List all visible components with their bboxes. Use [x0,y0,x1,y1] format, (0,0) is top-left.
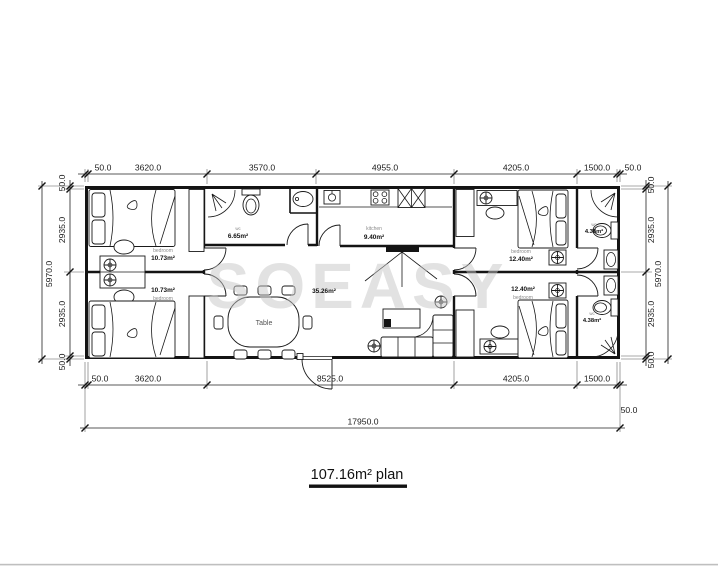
room-name: bedroom [153,248,173,254]
dim-top-50-right: 50.0 [625,163,642,173]
desk-top-right [477,191,517,220]
room-name: kitchen [366,226,382,232]
bed-top-left [89,190,175,247]
door-wc-bottom-right [577,275,598,296]
table-label: Table [256,320,273,327]
dimensions-left: 50.0 2935.0 2935.0 50.0 5970.0 [38,174,84,370]
room-name: wc [589,311,595,316]
dim-top-4955: 4955.0 [372,163,399,173]
room-name: bedroom [511,249,531,255]
dim-right-2935-top: 2935.0 [646,217,656,244]
door-wc-top-left [287,224,308,245]
door-wc-top-right [577,248,598,269]
fridge [398,189,425,208]
dim-top-1500: 1500.0 [584,163,611,173]
dim-bottom-50: 50.0 [92,374,109,384]
wc-bottom-right-fixtures [591,276,618,357]
floor-plan-drawing: SOEASY bedroom 10.73m² 10.73m² bedroom w… [0,0,718,567]
room-area: 12.40m² [511,286,535,293]
room-area: 9.40m² [364,234,384,241]
dimensions-top: 50.0 3620.0 3570.0 4955.0 4205.0 1500.0 … [78,163,642,185]
dim-left-50-bottom: 50.0 [57,353,67,370]
dim-bottom-50-right: 50.0 [621,405,638,415]
dim-left-2935-top: 2935.0 [57,217,67,244]
room-name: wc [591,222,597,227]
room-area: 4.38m² [585,228,603,235]
dim-bottom-4205: 4205.0 [503,374,530,384]
dim-top-4205: 4205.0 [503,163,530,173]
watermark-text: SOEASY [207,250,510,322]
side-table [368,340,380,352]
kitchen-counter [319,189,452,208]
desk-bottom-right [480,326,520,354]
nightstand-top-right [549,250,566,265]
dim-top-3620: 3620.0 [135,163,162,173]
room-name: bedroom [513,295,533,301]
nightstand-bottom-right [549,283,566,298]
bed-top-right [518,190,568,248]
room-name: bedroom [153,296,173,302]
plan-title-text: 107.16m² plan [311,467,404,483]
room-area: 6.65m² [228,233,248,240]
wardrobe-top-left [189,190,204,252]
dim-left-total: 5970.0 [44,261,54,288]
title-underline [309,485,407,488]
door-kitchen [319,225,340,246]
dim-total-width: 17950.0 [347,417,378,427]
room-area: 10.73m² [151,287,175,294]
dim-bottom-1500: 1500.0 [584,374,611,384]
dim-right-50-top: 50.0 [646,176,656,193]
dimensions-bottom: 50.0 3620.0 8525.0 4205.0 1500.0 50.0 17… [78,361,638,432]
floor-plan-sheet: SOEASY bedroom 10.73m² 10.73m² bedroom w… [0,0,718,567]
page-edge-line [0,564,718,566]
dimensions-right: 50.0 2935.0 2935.0 50.0 5970.0 [621,176,672,368]
dim-bottom-3620: 3620.0 [135,374,162,384]
dim-right-total: 5970.0 [653,261,663,288]
plan-title: 107.16m² plan [309,467,407,488]
wardrobe-top-right [456,190,474,237]
room-area: 4.38m² [583,317,601,324]
room-area: 12.40m² [509,256,533,263]
dim-top-3570: 3570.0 [249,163,276,173]
dim-right-50-bottom: 50.0 [646,351,656,368]
room-area: 10.73m² [151,255,175,262]
dim-top-50: 50.0 [95,163,112,173]
room-name: wc [235,226,241,231]
dim-left-50-top: 50.0 [57,174,67,191]
bed-bottom-right [518,300,568,358]
bed-bottom-left [89,301,175,358]
dim-right-2935-bottom: 2935.0 [646,301,656,328]
dim-left-2935-bottom: 2935.0 [57,301,67,328]
wardrobe-bottom-left [189,296,204,358]
room-area: 35.26m² [312,288,336,295]
desks-left [100,240,145,304]
dim-bottom-8525: 8525.0 [317,374,344,384]
